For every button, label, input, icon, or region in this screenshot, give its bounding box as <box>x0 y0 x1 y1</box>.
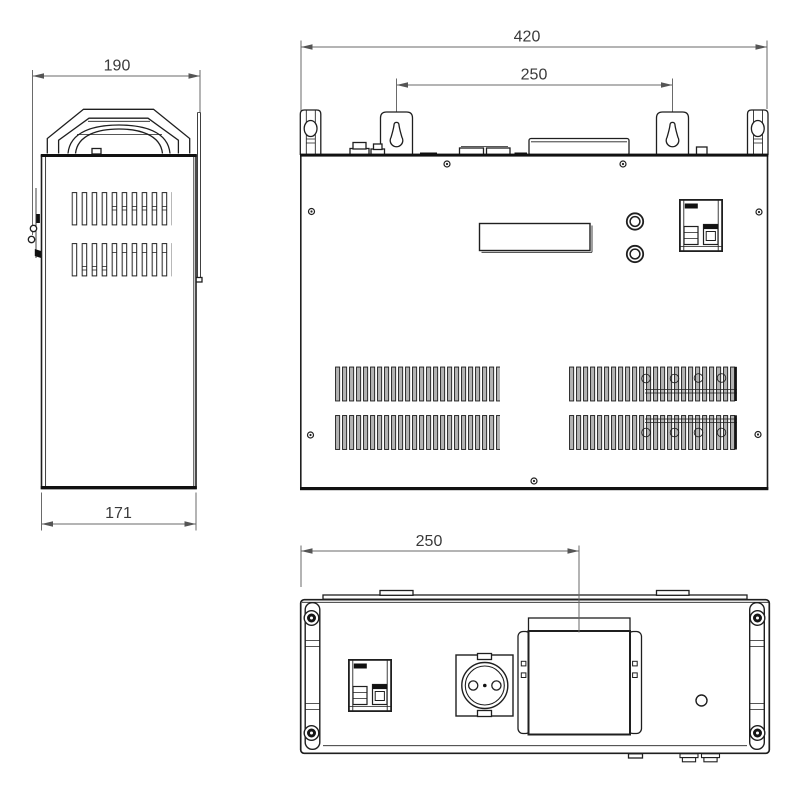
screw-hole <box>755 432 761 438</box>
terminal-cover-box <box>518 618 642 735</box>
bottom-connector-left <box>680 754 698 762</box>
socket-pin-hole-right <box>492 681 501 690</box>
screw-hole <box>620 161 626 167</box>
dim-arrow-right <box>189 73 201 79</box>
flange-tab-right <box>657 591 690 596</box>
circuit-breaker-bottom <box>349 660 391 711</box>
handle-latch-tab <box>92 149 101 155</box>
indicator-button-bottom <box>627 246 643 262</box>
flange-tab-left <box>380 591 413 596</box>
mounting-keyhole-right <box>657 112 689 155</box>
bottom-tab <box>629 754 643 758</box>
dim-label-side-bottom: 171 <box>105 505 132 522</box>
chassis-screw <box>304 726 319 741</box>
dimension-side-bottom-width: 171 <box>42 493 197 531</box>
bottom-view: 250 <box>301 533 770 762</box>
front-view: 420 250 <box>300 29 768 491</box>
technical-drawing: 190 <box>0 0 800 800</box>
end-bracket-right <box>748 110 769 155</box>
dim-label-front-overall: 420 <box>514 29 541 46</box>
dim-arrow-left <box>301 548 313 554</box>
screw-hole <box>531 478 537 484</box>
door-edge-hardware <box>28 188 41 258</box>
chassis-screw <box>304 611 319 626</box>
power-socket <box>456 654 513 717</box>
dim-arrow-right <box>661 82 673 88</box>
side-view: 190 <box>28 58 202 531</box>
lcd-display <box>480 224 593 253</box>
chassis-screw <box>750 611 765 626</box>
socket-pin-hole-left <box>469 681 478 690</box>
top-terminal-cover <box>529 139 629 156</box>
carry-handle <box>47 109 189 154</box>
chassis-screw <box>750 726 765 741</box>
screw-hole <box>444 161 450 167</box>
dim-arrow-right <box>185 521 197 527</box>
top-edge-hardware <box>300 110 768 156</box>
circuit-breaker-front <box>680 200 722 251</box>
indicator-button-top <box>627 213 643 229</box>
terminal-studs <box>350 143 385 156</box>
dim-arrow-right <box>756 44 768 50</box>
dim-arrow-left <box>42 521 54 527</box>
dim-label-side-top: 190 <box>104 58 131 75</box>
mounting-keyhole-left <box>381 112 413 155</box>
screw-hole <box>309 209 315 215</box>
dimension-front-mount-spacing: 250 <box>397 67 673 136</box>
socket-center-dot <box>483 684 487 688</box>
end-bracket-left <box>300 110 321 155</box>
dim-arrow-left <box>33 73 45 79</box>
drawing-canvas: 190 <box>0 0 800 800</box>
screw-hole <box>308 432 314 438</box>
dim-label-front-mount: 250 <box>521 67 548 84</box>
rear-flange <box>323 591 747 600</box>
panel-hole <box>696 695 707 706</box>
dim-arrow-left <box>301 44 313 50</box>
dim-arrow-right <box>568 548 580 554</box>
bottom-connector-right <box>702 754 720 762</box>
screw-hole <box>756 209 762 215</box>
dim-label-bottom-offset: 250 <box>416 533 443 550</box>
dim-arrow-left <box>397 82 409 88</box>
